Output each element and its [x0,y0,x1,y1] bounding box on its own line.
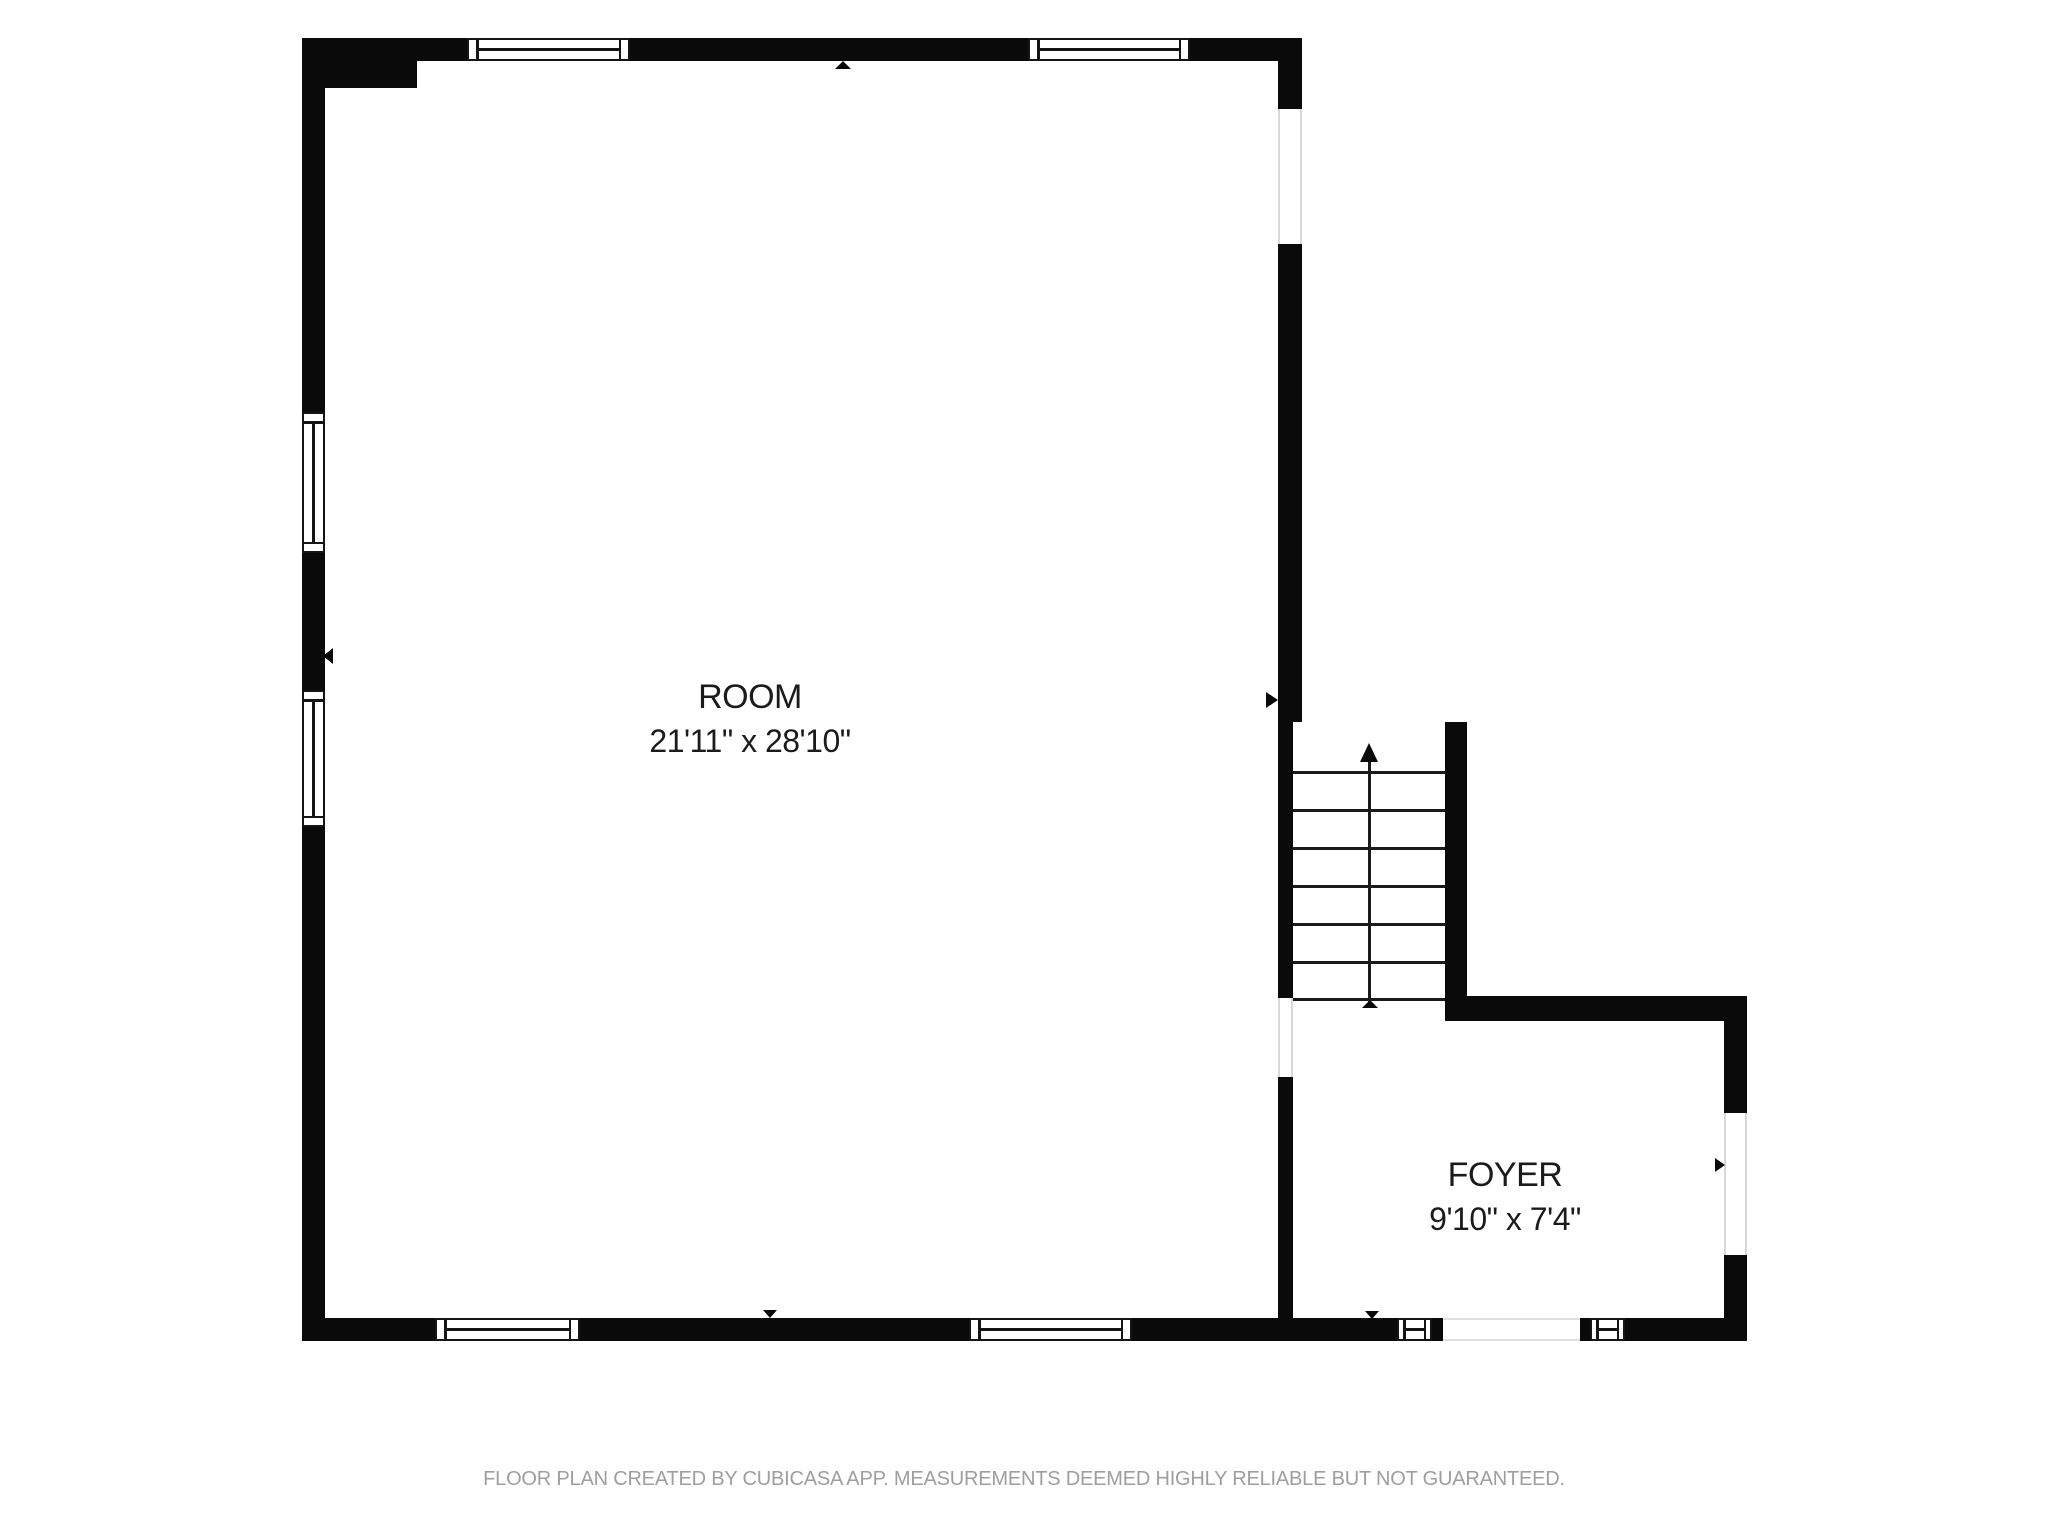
opening-right-wall [1278,109,1302,244]
wall-stub [1432,1318,1443,1341]
entry-arrow-left-icon [323,648,333,664]
room-label: ROOM 21'11" x 28'10" [649,675,850,763]
footer-disclaimer: FLOOR PLAN CREATED BY CUBICASA APP. MEAS… [483,1468,1565,1491]
stair-start-arrow-icon [1362,1000,1378,1008]
opening-foyer-bottom [1443,1318,1580,1341]
entry-arrow-foyer-right-icon [1715,1158,1725,1172]
floor-plan: ROOM 21'11" x 28'10" FOYER 9'10" x 7'4" … [0,0,2048,1536]
wall-foyer-top [1445,996,1747,1021]
window-top-1 [467,38,630,61]
wall-stub [1580,1318,1590,1341]
entry-arrow-room-bottom-icon [763,1310,777,1318]
window-foyer-2 [1590,1318,1625,1341]
wall-stub [1625,1318,1635,1341]
stair-up-arrow-icon [1360,743,1378,762]
room-name: ROOM [649,675,850,719]
room-dimensions: 9'10" x 7'4" [1429,1197,1581,1241]
window-bottom-1 [435,1318,580,1341]
window-foyer-1 [1397,1318,1432,1341]
entry-arrow-room-right-icon [1266,692,1278,708]
window-bottom-2 [969,1318,1132,1341]
entry-arrow-foyer-bottom-icon [1365,1311,1379,1319]
window-left-1 [302,412,325,553]
room-label: FOYER 9'10" x 7'4" [1429,1153,1581,1241]
room-name: FOYER [1429,1153,1581,1197]
window-top-2 [1028,38,1190,61]
entry-arrow-top-icon [835,61,851,69]
wall-stair-right [1445,722,1467,1021]
stair-direction-line [1368,762,1371,1003]
wall-stub [1387,1318,1397,1341]
room-dimensions: 21'11" x 28'10" [649,719,850,763]
window-left-2 [302,690,325,827]
opening-foyer-right-door [1724,1113,1747,1255]
staircase [1293,722,1445,1012]
opening-room-to-foyer [1278,998,1293,1077]
